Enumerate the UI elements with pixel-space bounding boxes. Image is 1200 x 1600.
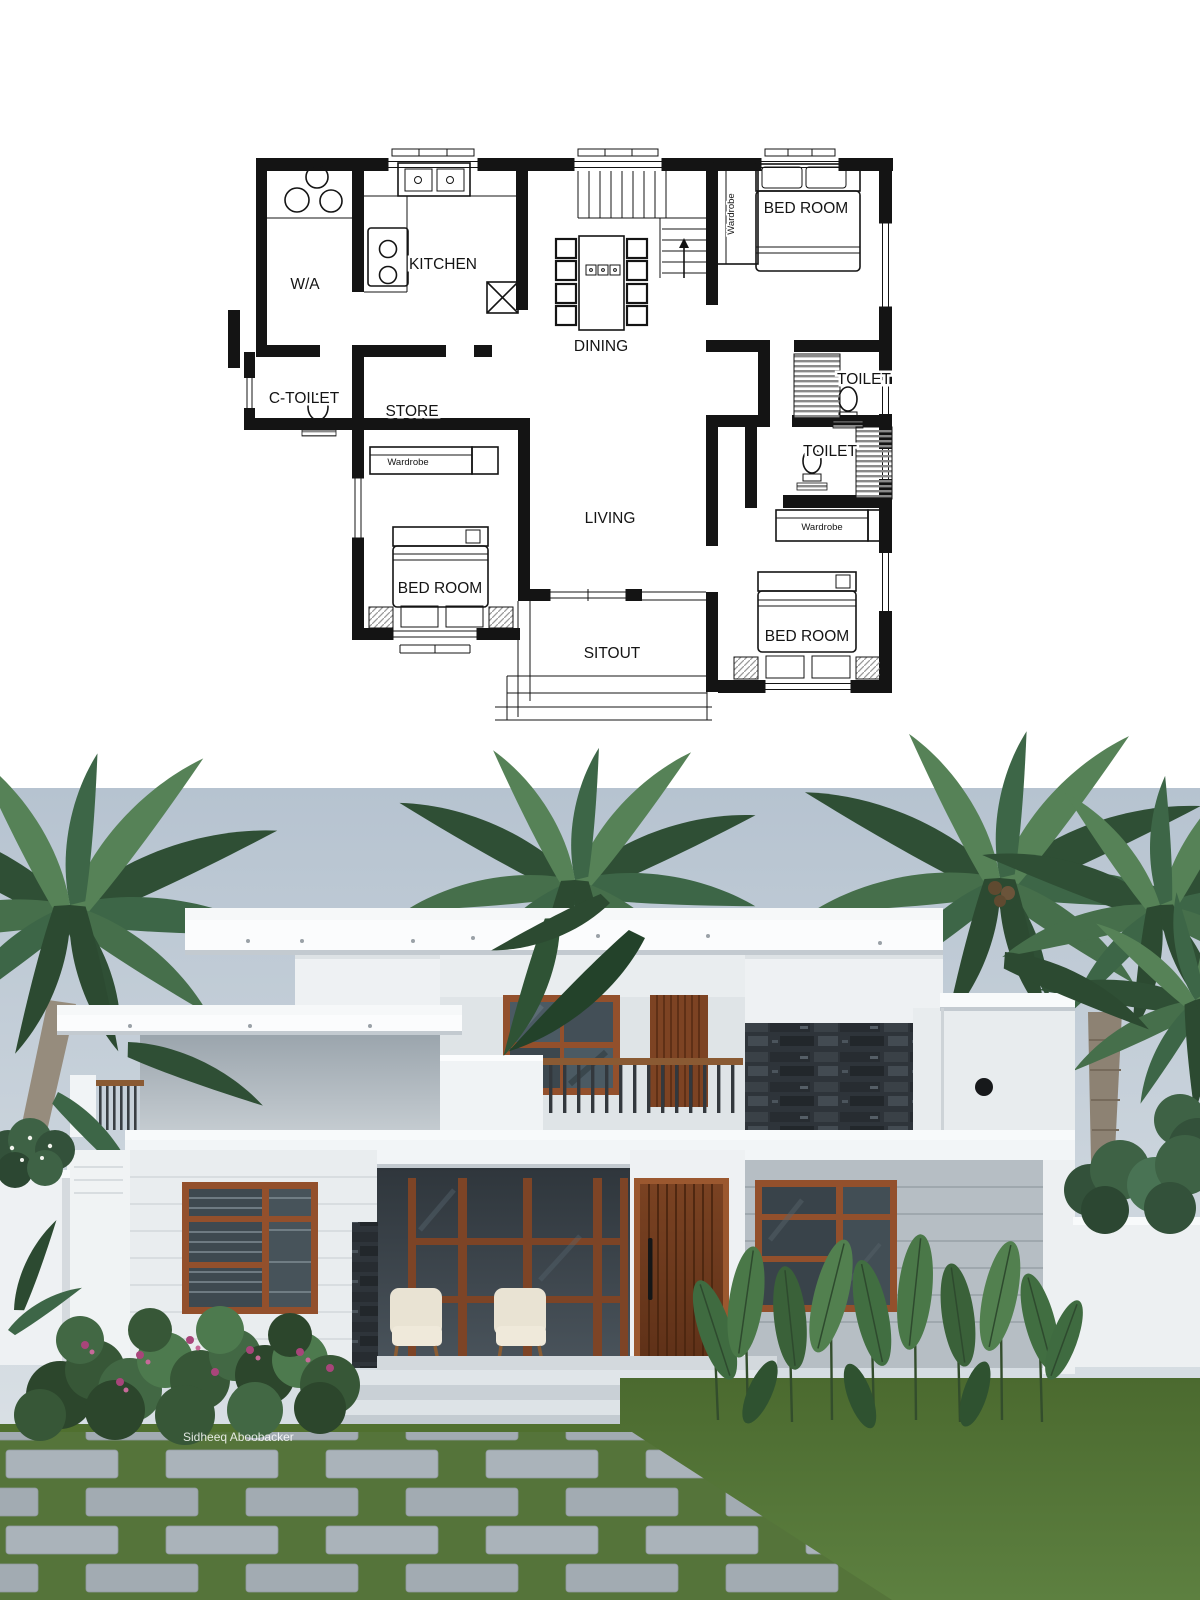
stone-clad-panel <box>745 1023 913 1135</box>
balcony-parapet <box>440 1055 543 1135</box>
plan-background <box>0 0 1200 790</box>
elevation-render: Sidheeq Aboobacker <box>0 730 1200 1600</box>
balcony-door <box>650 995 708 1107</box>
room-label-c-toilet: C-TOILET <box>269 390 340 407</box>
floor-plan: W/A KITCHEN DINING BED ROOM C-TOILET STO… <box>0 0 1200 790</box>
right-wing-roof <box>940 993 1075 1011</box>
room-label-toilet-lower: TOILET <box>803 443 858 460</box>
watermark: Sidheeq Aboobacker <box>183 1430 294 1444</box>
room-label-bedroom-bottom-right: BED ROOM <box>765 628 849 645</box>
left-window <box>182 1182 318 1314</box>
stone-pillar <box>352 1222 378 1368</box>
left-wing-gray-wall <box>140 1033 440 1135</box>
wardrobe-label-stairs: Wardrobe <box>726 193 737 234</box>
room-label-dining: DINING <box>574 338 628 355</box>
wardrobe-label-right: Wardrobe <box>801 522 842 533</box>
room-label-bedroom-top-right: BED ROOM <box>764 200 848 217</box>
room-label-sitout: SITOUT <box>584 645 641 662</box>
wall-lamp <box>975 1078 993 1096</box>
shower-area-lower <box>856 427 892 499</box>
room-label-wa: W/A <box>290 276 320 293</box>
left-wing-roof-slab <box>57 1005 462 1035</box>
screenshot: W/A KITCHEN DINING BED ROOM C-TOILET STO… <box>0 0 1200 1600</box>
room-label-toilet-upper: TOILET <box>837 371 892 388</box>
shower-area-upper <box>794 354 840 418</box>
room-label-kitchen: KITCHEN <box>409 256 477 273</box>
room-label-living: LIVING <box>585 510 636 527</box>
room-label-bedroom-left: BED ROOM <box>398 580 482 597</box>
room-label-store: STORE <box>385 403 438 420</box>
compound-wall-right <box>1073 1217 1200 1367</box>
right-wing-wall <box>913 1008 1075 1142</box>
wardrobe-label-store: Wardrobe <box>387 457 428 468</box>
